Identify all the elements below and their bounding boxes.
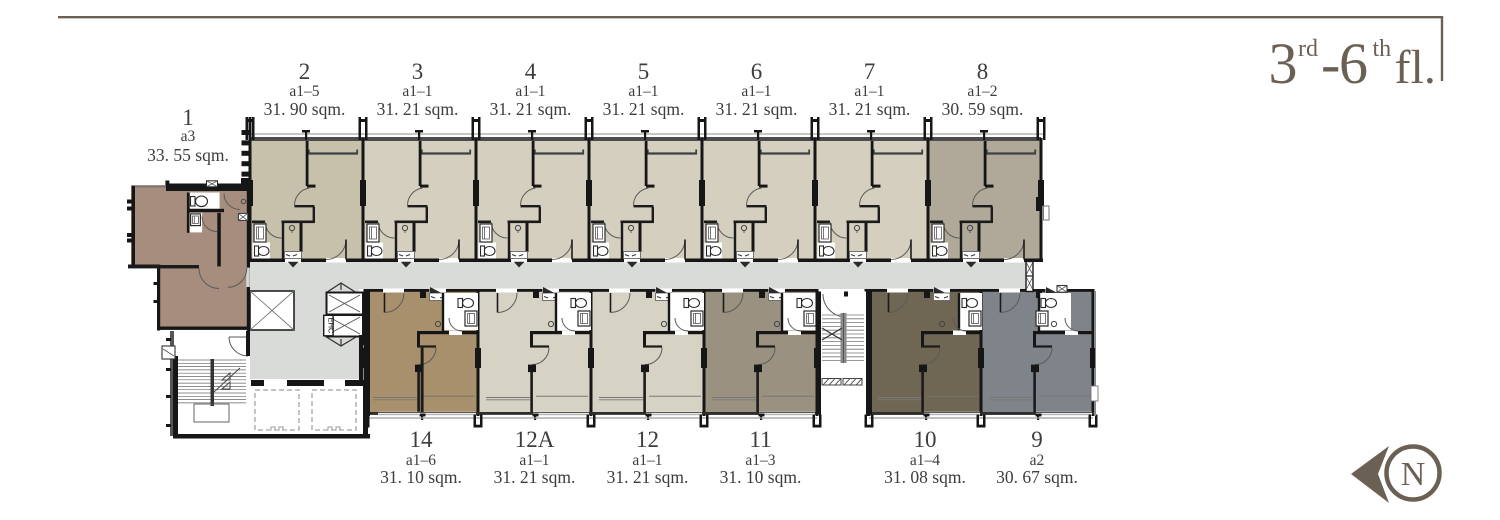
svg-text:N: N xyxy=(1401,456,1426,493)
svg-text:a1–1: a1–1 xyxy=(741,83,771,100)
svg-text:31. 08 sqm.: 31. 08 sqm. xyxy=(884,467,966,487)
svg-text:a1–1: a1–1 xyxy=(515,83,545,100)
svg-text:4: 4 xyxy=(525,59,537,84)
svg-text:31. 21 sqm.: 31. 21 sqm. xyxy=(494,467,576,487)
svg-text:a1–5: a1–5 xyxy=(289,83,319,100)
svg-text:33. 55 sqm.: 33. 55 sqm. xyxy=(147,145,229,165)
svg-text:6: 6 xyxy=(1339,31,1368,96)
svg-text:5: 5 xyxy=(638,59,650,84)
svg-text:3: 3 xyxy=(412,59,424,84)
svg-text:8: 8 xyxy=(977,59,989,84)
svg-text:31. 21 sqm.: 31. 21 sqm. xyxy=(377,99,459,119)
svg-text:a1–2: a1–2 xyxy=(967,83,997,100)
svg-text:2: 2 xyxy=(299,59,311,84)
svg-text:10: 10 xyxy=(914,427,937,452)
svg-text:12A: 12A xyxy=(515,427,555,452)
svg-text:31. 21 sqm.: 31. 21 sqm. xyxy=(603,99,685,119)
svg-text:11: 11 xyxy=(749,427,771,452)
svg-text:9: 9 xyxy=(1031,427,1043,452)
svg-text:31. 21 sqm.: 31. 21 sqm. xyxy=(607,467,689,487)
svg-text:31. 21 sqm.: 31. 21 sqm. xyxy=(716,99,798,119)
svg-text:a3: a3 xyxy=(181,128,196,145)
svg-text:fl.: fl. xyxy=(1395,41,1436,94)
svg-text:1: 1 xyxy=(182,105,194,130)
svg-text:30. 59 sqm.: 30. 59 sqm. xyxy=(942,99,1024,119)
svg-text:3: 3 xyxy=(1269,31,1298,96)
svg-text:a1–1: a1–1 xyxy=(402,83,432,100)
svg-text:31. 21 sqm.: 31. 21 sqm. xyxy=(490,99,572,119)
svg-text:a1–1: a1–1 xyxy=(628,83,658,100)
svg-text:a1–1: a1–1 xyxy=(854,83,884,100)
svg-text:31. 10 sqm.: 31. 10 sqm. xyxy=(380,467,462,487)
svg-text:14: 14 xyxy=(410,427,434,452)
svg-text:rd: rd xyxy=(1298,36,1318,62)
svg-text:31. 21 sqm.: 31. 21 sqm. xyxy=(829,99,911,119)
svg-text:31. 10 sqm.: 31. 10 sqm. xyxy=(720,467,802,487)
svg-text:th: th xyxy=(1373,36,1392,62)
svg-text:12: 12 xyxy=(636,427,659,452)
svg-text:6: 6 xyxy=(751,59,763,84)
svg-text:30. 67 sqm.: 30. 67 sqm. xyxy=(996,467,1078,487)
svg-text:31. 90 sqm.: 31. 90 sqm. xyxy=(264,99,346,119)
svg-text:EHC: EHC xyxy=(327,318,336,334)
svg-text:7: 7 xyxy=(864,59,876,84)
svg-text:-: - xyxy=(1321,31,1340,96)
